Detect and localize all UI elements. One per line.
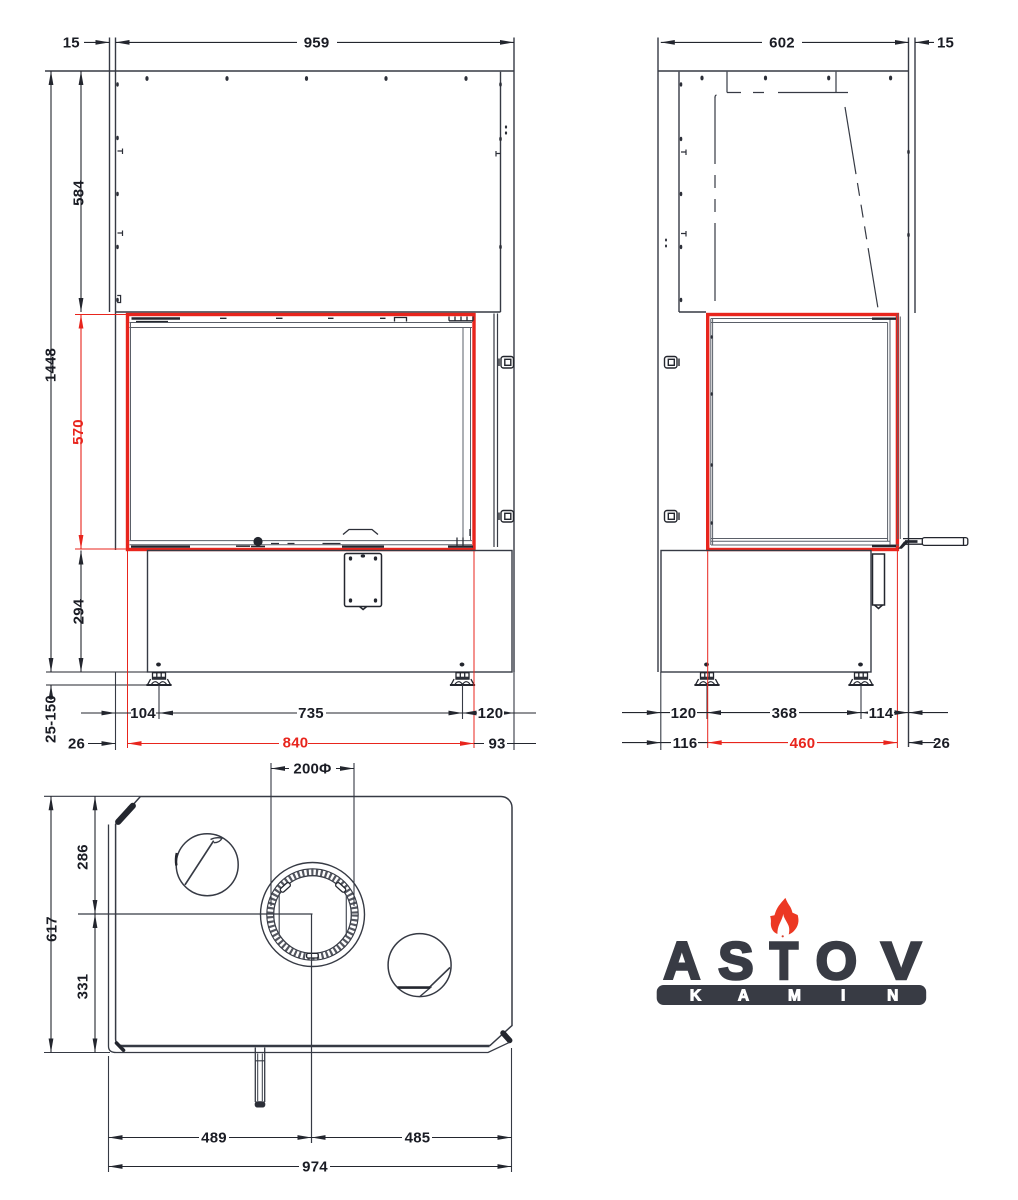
svg-text:1448: 1448 <box>42 348 59 382</box>
svg-text:368: 368 <box>772 705 798 722</box>
svg-text:974: 974 <box>302 1159 328 1176</box>
svg-text:120: 120 <box>478 705 504 722</box>
svg-text:200Φ: 200Φ <box>293 761 331 778</box>
svg-text:602: 602 <box>769 35 795 52</box>
svg-text:617: 617 <box>43 916 60 942</box>
svg-text:15: 15 <box>937 35 954 52</box>
svg-text:A: A <box>738 988 749 1005</box>
svg-text:V: V <box>881 932 921 991</box>
svg-text:489: 489 <box>201 1130 227 1147</box>
svg-text:26: 26 <box>933 735 950 752</box>
svg-text:A: A <box>663 932 700 991</box>
svg-text:570: 570 <box>70 419 87 445</box>
svg-text:840: 840 <box>283 735 309 752</box>
svg-text:331: 331 <box>74 974 91 1000</box>
svg-text:584: 584 <box>70 180 87 206</box>
svg-text:25-150: 25-150 <box>42 695 59 743</box>
svg-text:735: 735 <box>298 705 324 722</box>
svg-text:460: 460 <box>790 735 816 752</box>
svg-text:294: 294 <box>70 598 87 624</box>
svg-text:N: N <box>887 988 898 1005</box>
svg-text:26: 26 <box>68 736 85 753</box>
svg-text:M: M <box>788 988 801 1005</box>
svg-text:93: 93 <box>488 736 505 753</box>
svg-text:T: T <box>770 932 799 991</box>
svg-text:485: 485 <box>405 1130 431 1147</box>
svg-text:116: 116 <box>673 735 698 752</box>
svg-text:104: 104 <box>130 705 156 722</box>
svg-text:K: K <box>690 988 702 1005</box>
svg-text:120: 120 <box>671 705 697 722</box>
svg-text:114: 114 <box>869 705 894 722</box>
svg-text:15: 15 <box>63 35 80 52</box>
svg-text:O: O <box>816 932 858 991</box>
svg-text:I: I <box>841 988 845 1005</box>
svg-text:286: 286 <box>74 844 91 870</box>
svg-text:S: S <box>718 932 754 991</box>
svg-text:959: 959 <box>304 35 330 52</box>
